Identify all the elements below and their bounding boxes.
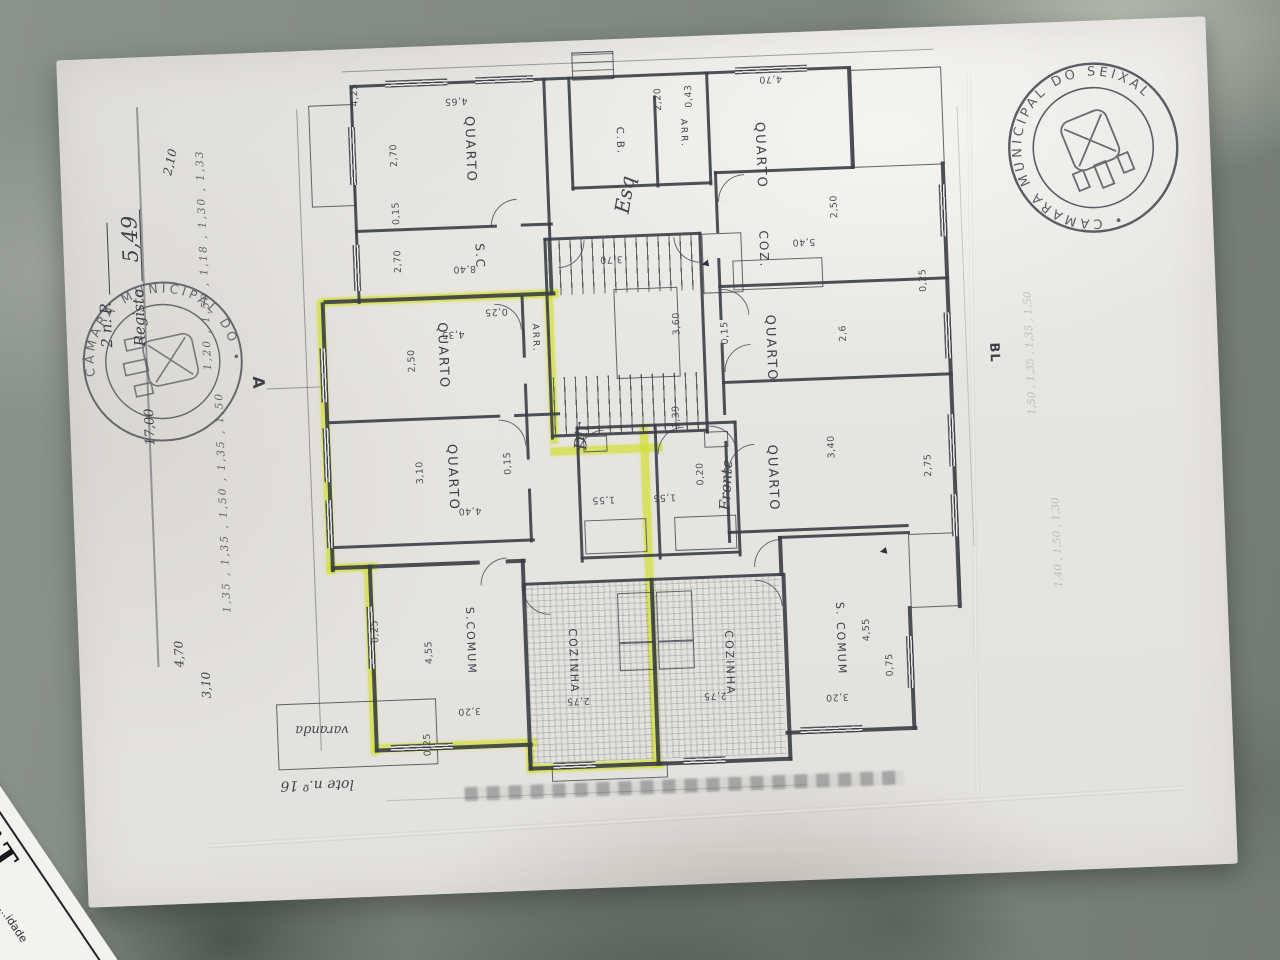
wall (333, 538, 535, 549)
kitchen-fixture (617, 592, 655, 643)
room-label: COZINHA (722, 630, 737, 696)
dim-label: 3,60 (671, 312, 683, 336)
dim-label: 0,25 (484, 306, 508, 318)
wall (714, 166, 854, 174)
dim-label: 3,40 (826, 435, 838, 459)
dim-label: 2,50 (828, 195, 840, 219)
dim-label: 1,39 (670, 405, 682, 429)
kitchen-fixture (658, 640, 695, 669)
room-label: COZ. (756, 230, 771, 268)
door-arc (709, 425, 737, 453)
door-arc (753, 539, 781, 567)
registo-label: Registo (129, 289, 149, 347)
bathtub (674, 515, 737, 551)
room-label: QUARTO (461, 116, 479, 183)
stamp-right-emblem (1054, 105, 1137, 197)
window (947, 414, 956, 466)
window (800, 725, 862, 734)
wall (705, 71, 712, 185)
dim-label: 0,25 (917, 268, 929, 292)
window (325, 500, 334, 548)
balcony (850, 66, 945, 167)
door-arc (498, 419, 526, 447)
dim-label: 2,70 (388, 144, 400, 168)
room-label: S.COMUM (463, 607, 479, 675)
room-label: QUARTO (752, 122, 770, 189)
dim-label: 3,10 (414, 461, 426, 485)
registo-value: 5,49 (117, 215, 143, 263)
room-label: ARR. (530, 323, 541, 353)
window (475, 75, 533, 84)
room-label: COZINHA (566, 628, 581, 694)
door-arc (480, 557, 508, 585)
dim-label: 2,20 (652, 88, 664, 112)
room-label: ARR. (678, 119, 689, 149)
dim-label: 0,15 (719, 321, 731, 345)
registration-registo-line: Registo 5,49 (117, 110, 150, 347)
dim-label: 2,50 (406, 349, 418, 373)
wall (722, 372, 953, 384)
dimension-line-faint (957, 106, 975, 546)
dim-label: 0,75 (884, 653, 896, 677)
wall (567, 77, 574, 191)
dim-label: 4,35 (441, 328, 465, 340)
registration-note: 2 n. P. Registo 5,49 (79, 107, 238, 349)
window (348, 127, 357, 185)
room-label: QUARTO (444, 444, 462, 511)
wall (355, 225, 497, 233)
kitchen-counter (732, 257, 823, 290)
dim-label: 3,20 (458, 705, 482, 717)
kitchen-fixture (656, 590, 694, 641)
room-label: QUARTO (762, 314, 780, 381)
dim-label: 5,40 (792, 236, 816, 248)
plan-paper: QUARTOS.CQUARTOQUARTOS.COMUMCOZINHACOZIN… (56, 16, 1238, 908)
arrow-triangle-icon: ▲ (878, 547, 889, 556)
dim-label: 0,43 (683, 84, 695, 108)
room-label: QUARTO (764, 444, 782, 511)
window (950, 494, 959, 536)
dim-label: 2,75 (703, 690, 727, 702)
handwritten-note: 3,10 (199, 671, 214, 698)
handwritten-note: Frente (716, 459, 736, 511)
bathtub (584, 518, 647, 554)
window (683, 756, 725, 765)
np-label: 2 n. P. (96, 302, 116, 348)
wall (778, 531, 910, 539)
window (352, 245, 361, 291)
dim-label: 0,25 (369, 620, 381, 644)
handwritten-note: 1,50 , 1,35 , 1,35 , 1,50 (1022, 291, 1039, 415)
window (385, 78, 447, 87)
dimension-line (267, 386, 325, 389)
dim-label: 4,25 (349, 83, 361, 107)
dim-label: 4,55 (861, 618, 873, 642)
kitchen-fixture (619, 642, 656, 671)
dim-label: 2,75 (922, 453, 934, 477)
wall (787, 733, 792, 761)
at-text-fragment-1: …idade (0, 903, 30, 945)
wall (714, 171, 719, 233)
dim-label: 4,40 (458, 505, 482, 517)
plan-marker: BL (986, 342, 1002, 363)
dim-label: 4,55 (423, 641, 435, 665)
handwritten-note: varanda (295, 722, 349, 737)
dim-label: 4,70 (759, 73, 783, 85)
dim-label: 1,55 (592, 494, 616, 506)
dim-label: 3,20 (825, 691, 849, 703)
dim-label: 0,15 (390, 202, 402, 226)
door-arc (490, 199, 518, 227)
handwritten-note: Dir (571, 422, 592, 450)
dim-label: 8,40 (453, 263, 477, 275)
handwritten-note: lote n.º 16 (280, 776, 354, 794)
dim-label: 2,6 (837, 325, 849, 342)
dim-label: 0,20 (695, 462, 707, 486)
window (319, 348, 328, 402)
dim-label: 0,15 (502, 452, 514, 476)
window (939, 184, 948, 236)
dim-label: 3,70 (599, 253, 623, 265)
np-rule (106, 222, 110, 294)
window (322, 428, 331, 482)
door-arc (717, 174, 745, 202)
handwritten-note: 4,70 (172, 640, 187, 667)
balcony (908, 532, 962, 608)
room-label: S. COMUM (833, 602, 849, 676)
registration-np-line: 2 n. P. (89, 111, 116, 348)
room-label: C.B. (614, 127, 626, 156)
dim-label: 2,70 (392, 250, 404, 274)
wall (571, 181, 712, 189)
handwritten-note: 1,40 , 1,50 , 1,30 (1050, 497, 1065, 588)
wall (368, 560, 480, 568)
dim-label: 4,65 (444, 95, 468, 107)
window (943, 312, 952, 358)
dim-label: 2,75 (566, 695, 590, 707)
photo-of-floor-plan: QUARTOS.CQUARTOQUARTOS.COMUMCOZINHACOZIN… (0, 0, 1280, 960)
entrance-steps (571, 51, 614, 81)
dim-label: 1,55 (653, 491, 677, 503)
wall (328, 415, 500, 425)
dim-label: 0,25 (422, 733, 434, 757)
door-arc (721, 288, 749, 316)
wall (528, 488, 533, 542)
wall (524, 384, 530, 460)
window (906, 636, 915, 688)
at-text-fragment-2: …uaneira (9, 955, 49, 960)
handwritten-note: Esq (610, 174, 640, 215)
wall (720, 343, 726, 415)
door-arc (724, 344, 752, 372)
